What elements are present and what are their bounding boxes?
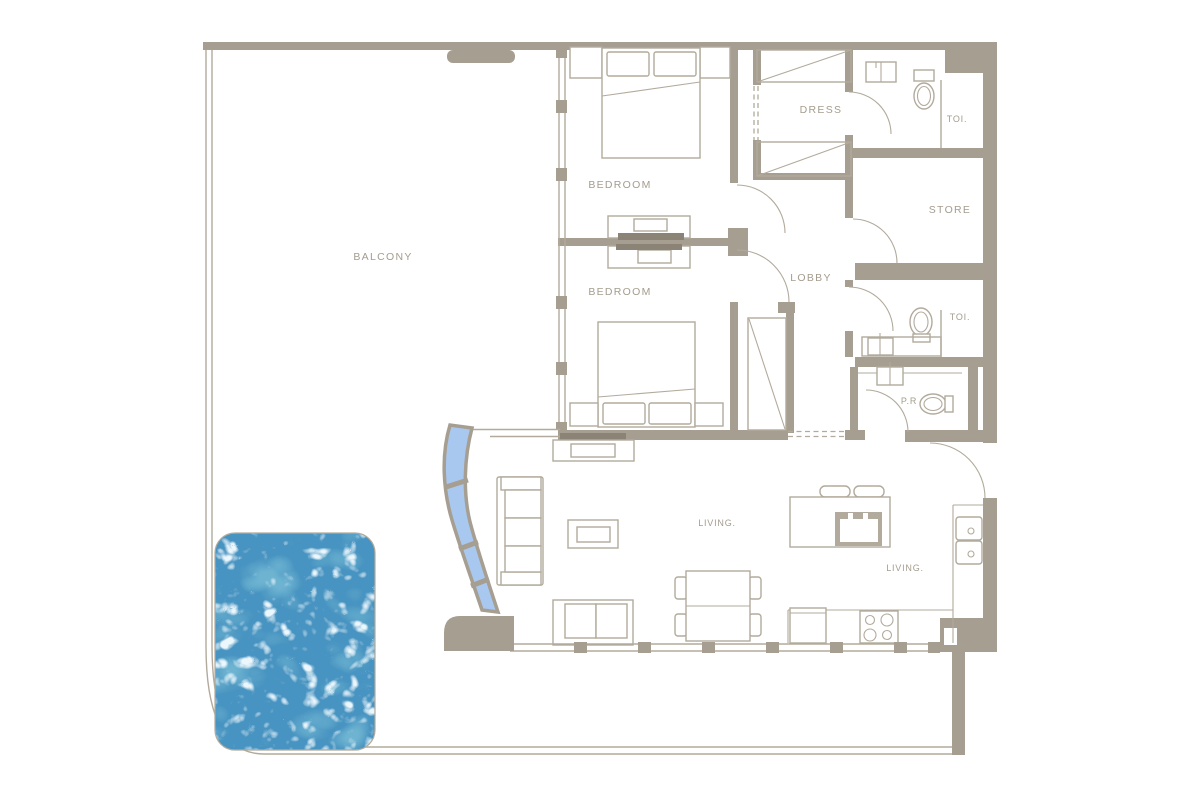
nightstand (570, 47, 602, 78)
pool (215, 533, 375, 750)
nightstand (570, 403, 598, 426)
living-left-label: LIVING. (698, 518, 736, 528)
bed-icon (598, 322, 695, 427)
toilet-top-door-arc (849, 92, 891, 134)
kitchen-door-arc (930, 443, 985, 498)
toilet-top-label: TOI. (947, 114, 968, 124)
living-room: LIVING. (497, 433, 761, 645)
lobby-label: LOBBY (790, 272, 832, 284)
glass-wall-base-block (444, 616, 514, 651)
sofa-left (497, 477, 543, 585)
bedroom-bottom-label: BEDROOM (588, 286, 651, 298)
sofa-bottom (553, 600, 633, 645)
store-label: STORE (929, 204, 971, 216)
toilet-middle-door-arc (849, 287, 893, 331)
bedroom2-door-arc (737, 250, 789, 302)
bed-icon (602, 48, 700, 158)
store-door-arc (853, 219, 897, 263)
powder-room-label: P.R (901, 396, 917, 406)
bar-stool (820, 486, 850, 497)
sink-icon (868, 333, 893, 355)
bedroom-top-label: BEDROOM (588, 179, 651, 191)
dining-set (675, 571, 761, 641)
fridge-icon (790, 608, 826, 643)
bedroom-1: BEDROOM (570, 47, 730, 240)
dashed-openings (754, 86, 845, 437)
stove-icon (860, 611, 898, 643)
tv-console-bottom (608, 244, 690, 268)
nightstand (695, 403, 723, 426)
bar-stool (854, 486, 884, 497)
toilet-middle-label: TOI. (950, 312, 971, 322)
toilet-icon (920, 394, 953, 414)
floor-plan-page: BEDROOM BEDROOM DRESS TOI. STORE LOBBY (0, 0, 1200, 800)
sink-icon (866, 62, 896, 82)
island-counter (790, 486, 890, 547)
toilet-icon (914, 70, 934, 109)
powder-room: P.R (858, 362, 962, 414)
floor-plan-drawing: BEDROOM BEDROOM DRESS TOI. STORE LOBBY (0, 0, 1200, 800)
toilet-middle-room: TOI. (862, 308, 970, 356)
staircase (748, 318, 786, 430)
south-window-band (510, 642, 940, 653)
double-sink-icon (956, 517, 982, 564)
dress-label: DRESS (800, 104, 843, 116)
nightstand (700, 47, 730, 78)
balcony-label: BALCONY (353, 251, 412, 263)
tv-console-living (553, 433, 634, 461)
coffee-table (568, 520, 618, 548)
bedroom1-door-arc (737, 185, 785, 233)
tv-console-top (608, 216, 690, 240)
living-right-label: LIVING. (886, 563, 924, 573)
bedroom-2: BEDROOM (570, 244, 723, 427)
